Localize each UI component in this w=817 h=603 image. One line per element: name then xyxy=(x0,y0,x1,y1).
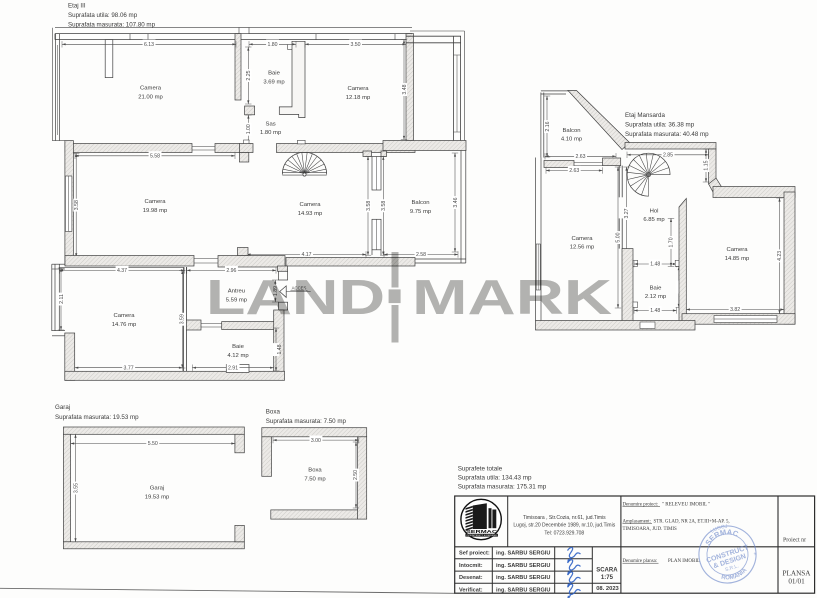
svg-text:ing. SARBU SERGIU: ing. SARBU SERGIU xyxy=(496,587,550,593)
svg-text:Lugoj, str.20 Decembrie 1989,: Lugoj, str.20 Decembrie 1989, nr.10, jud… xyxy=(513,523,615,529)
svg-text:2.63: 2.63 xyxy=(575,154,585,160)
svg-text:6.85 mp: 6.85 mp xyxy=(643,217,665,223)
svg-text:5.00: 5.00 xyxy=(615,232,621,242)
svg-text:5.58: 5.58 xyxy=(150,154,160,160)
svg-text:Timisoara , Str.Cozia, nr.61,: Timisoara , Str.Cozia, nr.61, jud.Timis xyxy=(523,515,606,521)
svg-text:Suprafata utila: 134.43 mp: Suprafata utila: 134.43 mp xyxy=(458,474,532,481)
svg-text:3.50: 3.50 xyxy=(350,42,360,48)
svg-text:4.10 mp: 4.10 mp xyxy=(561,137,583,143)
svg-text:Suprafete totale: Suprafete totale xyxy=(458,465,503,472)
svg-text:Suprafata masurata: 40.48 mp: Suprafata masurata: 40.48 mp xyxy=(625,131,709,138)
svg-text:LAND: LAND xyxy=(206,271,385,325)
svg-text:Etaj Mansarda: Etaj Mansarda xyxy=(625,112,665,119)
svg-text:Intocmit:: Intocmit: xyxy=(459,563,483,569)
svg-text:" RELEVEU IMOBIL ": " RELEVEU IMOBIL " xyxy=(662,503,710,508)
svg-text:19.98 mp: 19.98 mp xyxy=(143,208,168,214)
svg-text:Camera: Camera xyxy=(348,86,370,92)
svg-text:Desenat:: Desenat: xyxy=(459,575,483,581)
svg-text:Verificat:: Verificat: xyxy=(459,587,483,593)
svg-text:01/01: 01/01 xyxy=(788,578,805,586)
svg-text:MARK: MARK xyxy=(412,271,612,325)
svg-text:2.91: 2.91 xyxy=(228,365,238,371)
svg-text:3.82: 3.82 xyxy=(730,307,740,313)
svg-text:3.00: 3.00 xyxy=(311,438,321,444)
svg-text:ing. SARBU SERGIU: ing. SARBU SERGIU xyxy=(496,575,550,581)
svg-text:2.11: 2.11 xyxy=(59,294,65,304)
svg-text:Proiect nr: Proiect nr xyxy=(783,538,806,544)
svg-text:1.80 mp: 1.80 mp xyxy=(260,130,282,136)
svg-text:Balcon: Balcon xyxy=(411,200,429,206)
svg-text:2.58: 2.58 xyxy=(416,252,426,258)
svg-text:3.48: 3.48 xyxy=(402,84,408,94)
svg-text:3.27: 3.27 xyxy=(624,208,630,218)
svg-text:ing. SARBU SERGIU: ing. SARBU SERGIU xyxy=(496,563,550,569)
svg-text:3.58: 3.58 xyxy=(366,201,372,211)
svg-text:7.50 mp: 7.50 mp xyxy=(304,477,326,483)
svg-text:2.25: 2.25 xyxy=(246,70,252,80)
svg-text:Suprafata masurata: 19.53 mp: Suprafata masurata: 19.53 mp xyxy=(55,414,139,421)
svg-text:2.63: 2.63 xyxy=(569,168,579,174)
svg-text:9.75 mp: 9.75 mp xyxy=(410,209,432,215)
svg-text:Camera: Camera xyxy=(300,202,322,208)
svg-text:3.58: 3.58 xyxy=(74,200,80,210)
svg-text:Camera: Camera xyxy=(140,86,162,92)
svg-text:3.58: 3.58 xyxy=(381,201,387,211)
svg-text:Boxa: Boxa xyxy=(266,409,281,416)
svg-text:2.85: 2.85 xyxy=(663,153,673,159)
svg-text:08. 2023: 08. 2023 xyxy=(596,586,619,592)
svg-text:2.50: 2.50 xyxy=(353,470,359,480)
svg-text:1:75: 1:75 xyxy=(601,575,614,581)
svg-text:1.70: 1.70 xyxy=(668,237,674,247)
svg-text:SCARA: SCARA xyxy=(596,568,618,574)
svg-text:Baie: Baie xyxy=(232,344,245,350)
svg-text:ing. SARBU SERGIU: ing. SARBU SERGIU xyxy=(496,551,550,557)
svg-text:21.00 mp: 21.00 mp xyxy=(138,95,163,101)
svg-text:3.77: 3.77 xyxy=(124,365,134,371)
svg-text:Camera: Camera xyxy=(145,199,167,205)
svg-text:Garaj: Garaj xyxy=(150,486,164,492)
svg-text:Camera: Camera xyxy=(572,236,594,242)
svg-text:Baie: Baie xyxy=(650,286,663,292)
svg-text:Hol: Hol xyxy=(650,209,659,215)
svg-text:Camera: Camera xyxy=(727,247,749,253)
svg-text:STR. GLAD, NR 2A, ET.III+M-AP.: STR. GLAD, NR 2A, ET.III+M-AP. 5, xyxy=(654,520,730,525)
svg-text:4.37: 4.37 xyxy=(117,268,127,274)
svg-text:6.13: 6.13 xyxy=(144,42,154,48)
svg-text:14.85 mp: 14.85 mp xyxy=(725,256,750,262)
svg-text:Baie: Baie xyxy=(268,71,281,77)
svg-text:14.93 mp: 14.93 mp xyxy=(298,211,323,217)
svg-text:Suprafata utila: 98.06 mp: Suprafata utila: 98.06 mp xyxy=(68,12,138,19)
svg-text:5.50: 5.50 xyxy=(148,441,158,447)
svg-text:12.56 mp: 12.56 mp xyxy=(570,245,595,251)
svg-text:1.48: 1.48 xyxy=(650,262,660,268)
svg-text:2.16: 2.16 xyxy=(545,121,551,131)
svg-text:Suprafata masurata: 7.50 mp: Suprafata masurata: 7.50 mp xyxy=(266,418,347,425)
svg-text:1.80: 1.80 xyxy=(267,42,277,48)
svg-text:Tel: 0723.929.708: Tel: 0723.929.708 xyxy=(544,531,584,537)
svg-text:TIMISOARA, JUD. TIMIS: TIMISOARA, JUD. TIMIS xyxy=(623,527,678,532)
svg-text:1.15: 1.15 xyxy=(703,160,709,170)
svg-text:12.18 mp: 12.18 mp xyxy=(346,95,371,101)
svg-text:PLANSA: PLANSA xyxy=(783,570,812,578)
svg-text:Garaj: Garaj xyxy=(55,404,70,411)
svg-text:3.69 mp: 3.69 mp xyxy=(263,80,285,86)
svg-text:1.48: 1.48 xyxy=(650,308,660,314)
svg-text:3.55: 3.55 xyxy=(73,483,79,493)
svg-text:3.46: 3.46 xyxy=(453,197,459,207)
svg-text:Etaj III: Etaj III xyxy=(68,3,86,10)
svg-text:3.59: 3.59 xyxy=(180,314,186,324)
svg-text:Suprafata utila: 36.38 mp: Suprafata utila: 36.38 mp xyxy=(625,122,695,129)
svg-text:Sas: Sas xyxy=(266,122,276,128)
svg-text:CONSTRUCT & DESIGN: CONSTRUCT & DESIGN xyxy=(467,535,497,537)
svg-text:1.48: 1.48 xyxy=(277,344,283,354)
svg-text:4.23: 4.23 xyxy=(777,251,783,261)
svg-text:2.12 mp: 2.12 mp xyxy=(645,294,667,300)
svg-text:Camera: Camera xyxy=(114,313,136,319)
svg-text:1.00: 1.00 xyxy=(246,124,252,134)
svg-text:14.76 mp: 14.76 mp xyxy=(112,322,137,328)
svg-text:4.12 mp: 4.12 mp xyxy=(227,353,249,359)
svg-text:PLAN IMOBIL: PLAN IMOBIL xyxy=(668,559,700,564)
svg-text:Balcon: Balcon xyxy=(562,128,580,134)
svg-text:Boxa: Boxa xyxy=(308,468,322,474)
svg-text:19.53 mp: 19.53 mp xyxy=(145,495,170,501)
svg-text:Suprafata masurata: 175.31 mp: Suprafata masurata: 175.31 mp xyxy=(458,483,547,490)
svg-text:Sef proiect:: Sef proiect: xyxy=(459,551,490,557)
